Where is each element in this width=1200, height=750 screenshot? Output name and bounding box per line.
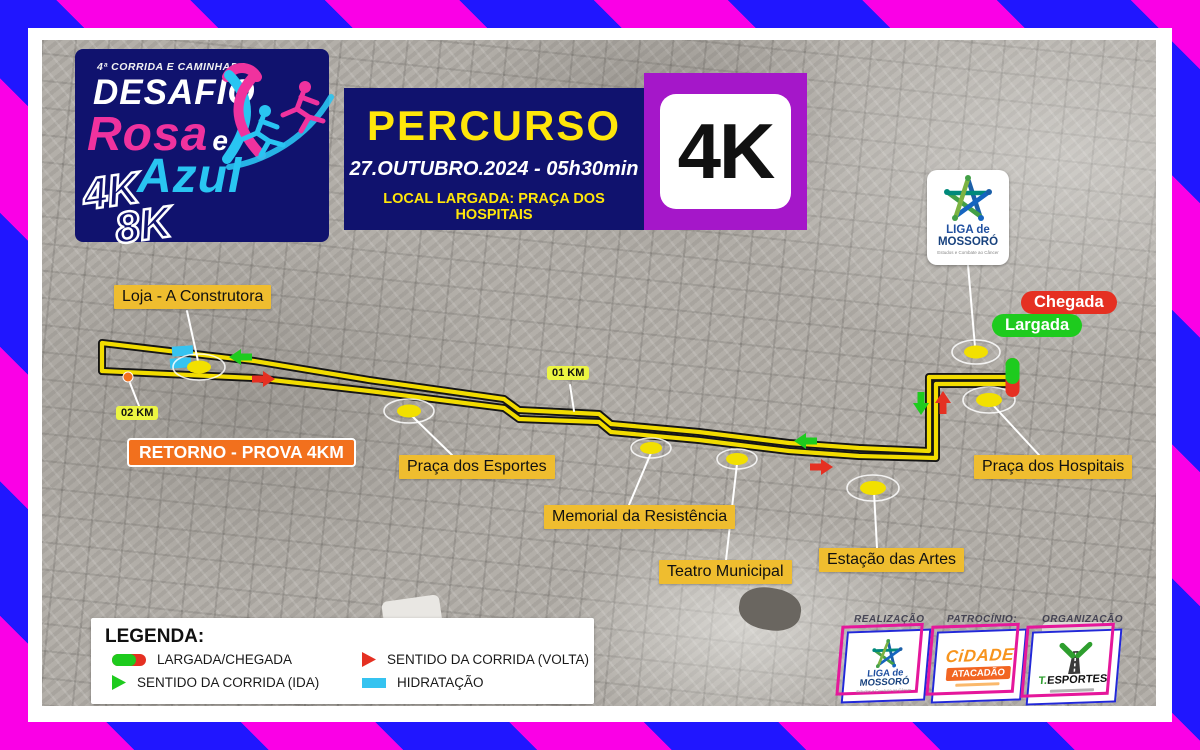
flyer-root: { "event": { "edition_line": "4ª CORRIDA… xyxy=(0,0,1200,750)
largada-pill: Largada xyxy=(992,314,1082,337)
label-teatro-municipal: Teatro Municipal xyxy=(659,560,792,584)
liga-name-line2: MOSSORÓ xyxy=(938,236,998,248)
cidade-smallprint-bar xyxy=(955,682,999,687)
sponsor-cidade-atacadao: CiDADE ATACADÃO xyxy=(931,628,1028,703)
banner-title: PERCURSO xyxy=(344,102,644,150)
distance-badge: 4K xyxy=(644,73,807,230)
start-finish-marker xyxy=(1006,358,1020,397)
legend-item-hidratacao: HIDRATAÇÃO xyxy=(361,675,594,690)
legend-label: LARGADA/CHEGADA xyxy=(157,652,292,667)
cidade-wordmark: CiDADE xyxy=(945,645,1015,667)
label-estacao-das-artes: Estação das Artes xyxy=(819,548,964,572)
label-km02: 02 KM xyxy=(116,406,158,420)
start-finish-pill-icon xyxy=(111,653,147,667)
legend-label: SENTIDO DA CORRIDA (VOLTA) xyxy=(387,652,589,667)
retorno-point-dot xyxy=(123,372,133,382)
legend-item-ida: SENTIDO DA CORRIDA (IDA) xyxy=(111,675,361,690)
red-arrow-icon xyxy=(361,652,377,667)
satellite-map: 4ª CORRIDA E CAMINHADA DESAFIO Rosa xyxy=(42,40,1156,706)
red-arrow-volta-icon xyxy=(252,371,275,387)
label-praca-dos-esportes: Praça dos Esportes xyxy=(399,455,555,479)
chegada-pill: Chegada xyxy=(1021,291,1117,314)
banner-location: LOCAL LARGADA: PRAÇA DOS HOSPITAIS xyxy=(344,191,644,223)
legend-title: LEGENDA: xyxy=(105,626,594,648)
tesportes-smallprint-bar xyxy=(1050,688,1094,693)
hydration-icon xyxy=(361,677,387,689)
label-memorial-da-resistencia: Memorial da Resistência xyxy=(544,505,735,529)
label-loja-construtora: Loja - A Construtora xyxy=(114,285,271,309)
legend-grid: LARGADA/CHEGADA SENTIDO DA CORRIDA (VOLT… xyxy=(111,652,594,690)
label-praca-dos-hospitais: Praça dos Hospitais xyxy=(974,455,1132,479)
green-arrow-icon xyxy=(111,675,127,690)
red-arrow-volta-icon xyxy=(810,459,833,475)
label-km01: 01 KM xyxy=(547,366,589,380)
title-azul: Azul xyxy=(137,149,242,204)
percurso-banner: PERCURSO 27.OUTUBRO.2024 - 05h30min LOCA… xyxy=(344,88,644,230)
distance-badge-text: 4K xyxy=(660,94,791,209)
sponsor-t-esportes: T.ESPORTES xyxy=(1026,628,1123,705)
legend-item-largada-chegada: LARGADA/CHEGADA xyxy=(111,652,361,667)
label-retorno-prova-4km: RETORNO - PROVA 4KM xyxy=(127,438,356,467)
liga-tagline: Estudos e Combate ao Câncer xyxy=(937,250,999,255)
liga-name-line1: LIGA de xyxy=(946,225,990,236)
tesportes-wordmark: T.ESPORTES xyxy=(1038,673,1108,687)
legend-item-volta: SENTIDO DA CORRIDA (VOLTA) xyxy=(361,652,594,667)
liga-star-icon xyxy=(870,638,905,669)
road-icon xyxy=(1050,641,1099,675)
legend-box: LEGENDA: LARGADA/CHEGADA SENTIDO DA CORR… xyxy=(91,618,594,704)
liga-mossoro-badge: LIGA de MOSSORÓ Estudos e Combate ao Cân… xyxy=(927,170,1009,265)
liga-star-icon xyxy=(943,175,993,223)
banner-datetime: 27.OUTUBRO.2024 - 05h30min xyxy=(344,158,644,181)
atacadao-wordmark: ATACADÃO xyxy=(945,666,1011,681)
distance-8k-outline: 8K xyxy=(112,197,175,254)
sponsor-liga-tagline: Estudos e Combate ao Câncer xyxy=(856,687,911,694)
sponsor-liga-mossoro: LIGA de MOSSORÓ Estudos e Combate ao Cân… xyxy=(841,629,932,704)
event-logo-panel: 4ª CORRIDA E CAMINHADA DESAFIO Rosa xyxy=(75,49,329,242)
white-mat-frame: 4ª CORRIDA E CAMINHADA DESAFIO Rosa xyxy=(28,28,1172,722)
legend-label: SENTIDO DA CORRIDA (IDA) xyxy=(137,675,319,690)
legend-label: HIDRATAÇÃO xyxy=(397,675,484,690)
